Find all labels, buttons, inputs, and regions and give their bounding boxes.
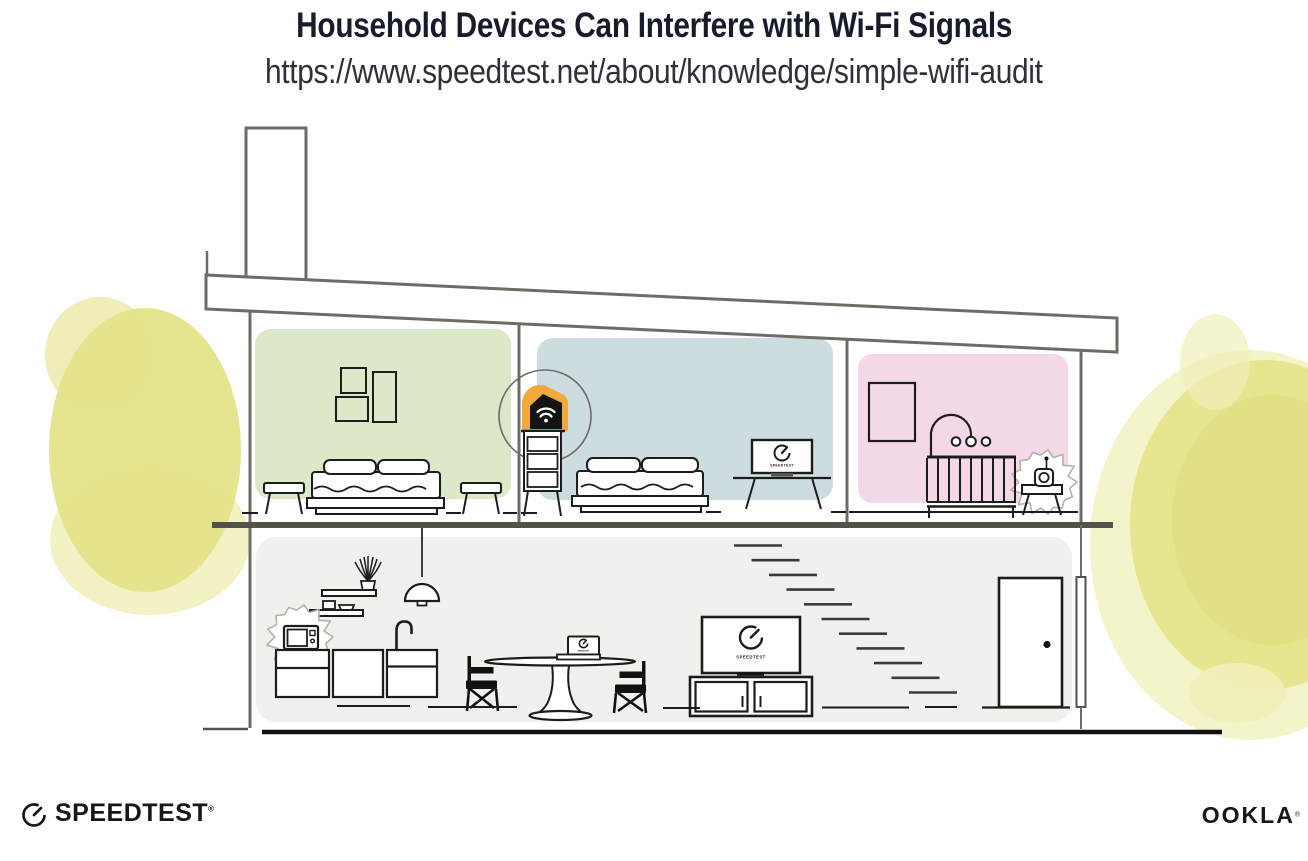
speedtest-wordmark: SPEEDTEST® <box>55 799 215 828</box>
bed <box>307 460 444 514</box>
chimney <box>246 128 306 281</box>
speedtest-logo: SPEEDTEST® <box>20 799 215 828</box>
cup <box>323 601 335 609</box>
door-knob <box>1043 641 1050 648</box>
bed <box>572 458 708 512</box>
speedtest-gauge-icon <box>20 800 48 828</box>
foliage-left <box>45 297 250 615</box>
dresser <box>521 431 565 516</box>
tv-screen-label: SPEEDTEST <box>770 464 794 468</box>
downspout <box>1077 577 1086 707</box>
ookla-logo: OOKLA® <box>1202 802 1300 829</box>
trademark-symbol: ® <box>208 805 214 814</box>
foliage-right <box>1090 314 1308 740</box>
microwave <box>284 626 318 652</box>
laptop-screen-label: SPEEDTEST <box>578 651 591 653</box>
trademark-symbol: ® <box>1295 812 1300 819</box>
tv-speedtest: SPEEDTEST <box>702 617 800 676</box>
tv-screen-label: SPEEDTEST <box>736 655 765 660</box>
media-console <box>690 677 812 716</box>
house-cross-section-illustration: SPEEDTEST <box>0 0 1308 861</box>
ookla-wordmark: OOKLA <box>1202 802 1295 828</box>
